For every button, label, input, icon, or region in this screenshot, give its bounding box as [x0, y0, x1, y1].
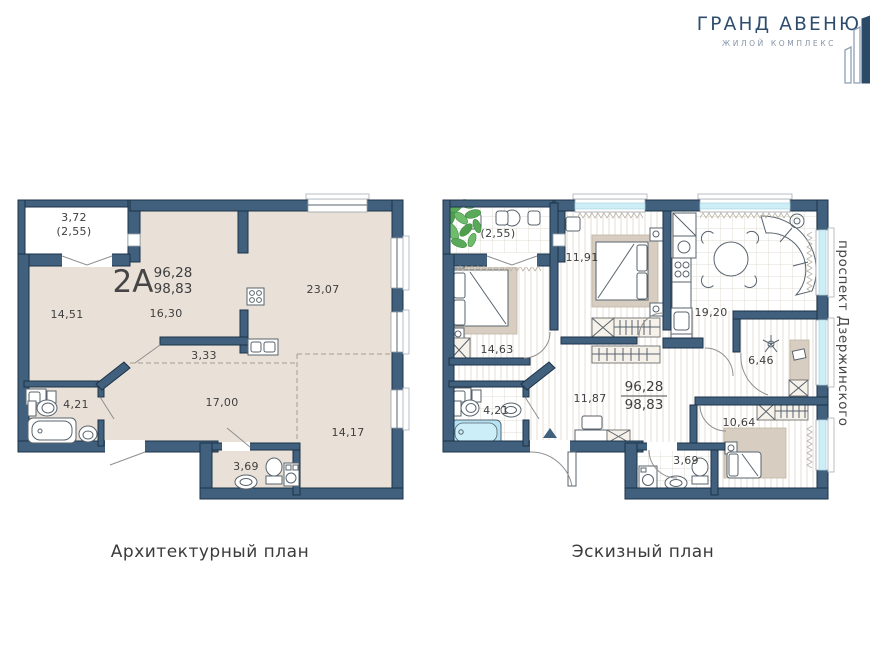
area-total: 98,83 — [154, 281, 193, 297]
room-area-label: 4,21 — [483, 404, 509, 417]
caption-architectural: Архитектурный план — [60, 542, 360, 562]
room-area-label: (2,55) — [57, 225, 92, 238]
area-total: 98,83 — [625, 397, 664, 413]
room-area-label: 3,72 — [61, 211, 87, 224]
room-area-label: 11,91 — [566, 251, 599, 264]
brand-buildings-icon — [779, 12, 870, 85]
room-area-label: 14,51 — [51, 308, 84, 321]
room-area-label: 6,46 — [748, 354, 774, 367]
area-living: 96,28 — [625, 379, 664, 395]
room-area-label: 10,64 — [723, 416, 756, 429]
room-area-label: (2,55) — [481, 227, 516, 240]
brand-logo: ГРАНД АВЕНЮ ЖИЛОЙ КОМПЛЕКС — [690, 12, 868, 48]
room-area-label: 14,17 — [332, 426, 365, 439]
room-area-label: 16,30 — [150, 307, 183, 320]
room-area-label: 14,63 — [481, 343, 514, 356]
area-living: 96,28 — [154, 265, 193, 281]
street-label: проспект Дзержинского — [835, 240, 851, 530]
room-area-label: 3,69 — [673, 454, 699, 467]
room-area-label: 17,00 — [206, 396, 239, 409]
sketch-plan: (2,55) 11,91 14,63 4,21 11,87 19,20 6,46… — [435, 193, 841, 515]
room-area-label: 19,20 — [695, 306, 728, 319]
apartment-code: 2A — [113, 264, 154, 300]
room-area-label: 11,87 — [574, 392, 607, 405]
flat-plan-poster: ГРАНД АВЕНЮ ЖИЛОЙ КОМПЛЕКС — [0, 0, 870, 653]
room-area-label: 23,07 — [307, 283, 340, 296]
architectural-plan: 3,72 (2,55) 2A 96,28 98,83 14,51 16,30 2… — [10, 193, 416, 515]
room-area-label: 3,69 — [233, 460, 259, 473]
room-area-label: 3,33 — [191, 349, 217, 362]
room-area-label: 4,21 — [63, 398, 89, 411]
caption-sketch: Эскизный план — [493, 542, 793, 562]
